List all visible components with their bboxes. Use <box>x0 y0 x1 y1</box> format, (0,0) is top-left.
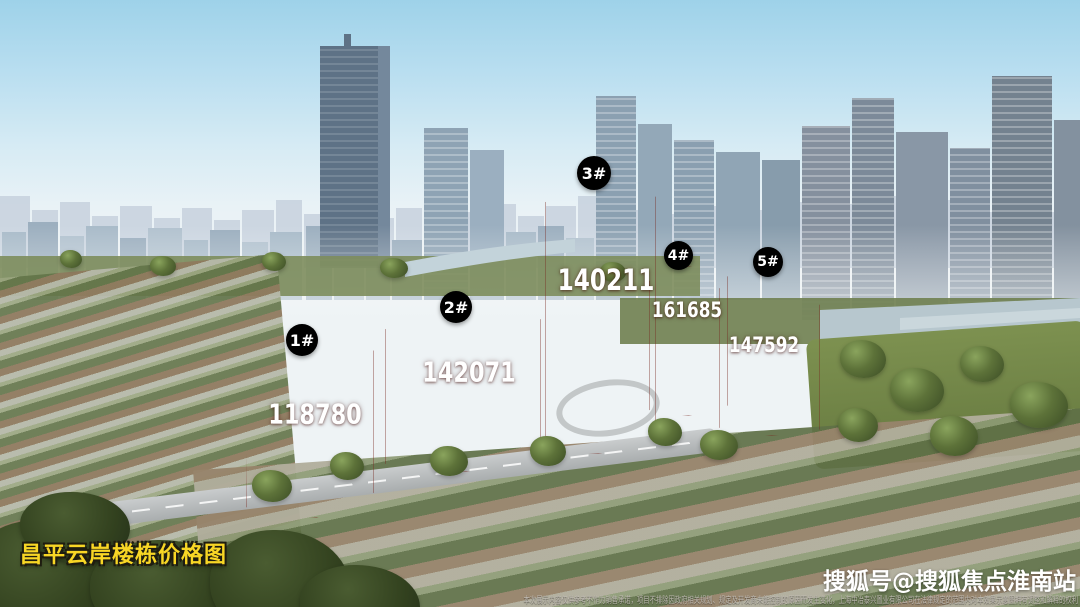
building-2-badge: 2# <box>440 291 472 323</box>
tree <box>890 368 944 412</box>
building-2-label: 2# <box>444 298 469 317</box>
disclaimer-text: 本次展示内容仅供参考不作为销售承诺，项目不排除因政府相关规划、规定及开发商未能控… <box>524 593 1078 606</box>
tree <box>840 340 886 378</box>
tree <box>700 430 738 460</box>
building-5-price: 147592 <box>729 333 799 357</box>
building-5-label: 5# <box>757 254 778 270</box>
building-5-badge: 5# <box>753 247 783 277</box>
tree <box>648 418 682 446</box>
building-4 <box>649 266 728 416</box>
building-3-badge: 3# <box>577 156 611 190</box>
tree <box>530 436 566 466</box>
building-4-badge: 4# <box>664 241 693 270</box>
tree <box>838 408 878 442</box>
building-3-price: 140211 <box>558 263 655 297</box>
tree <box>150 256 176 276</box>
tree <box>252 470 292 502</box>
tree <box>330 452 364 480</box>
building-3 <box>545 186 656 454</box>
tree <box>380 258 408 278</box>
building-1-price: 118780 <box>268 398 362 431</box>
building-1-label: 1# <box>290 331 315 350</box>
tree <box>262 252 286 271</box>
building-4-price: 161685 <box>652 298 722 322</box>
tree <box>430 446 468 476</box>
building-3-label: 3# <box>582 164 607 183</box>
tree <box>60 250 82 268</box>
tree <box>960 346 1004 382</box>
watermark: 搜狐号@搜狐焦点淮南站 <box>823 562 1076 596</box>
tree <box>930 416 978 456</box>
page-title: 昌平云岸楼栋价格图 <box>20 537 227 569</box>
building-2-price: 142071 <box>422 356 516 389</box>
building-2 <box>385 306 541 472</box>
building-1-badge: 1# <box>286 324 318 356</box>
building-4-label: 4# <box>668 248 689 264</box>
tree <box>1010 382 1068 428</box>
price-map-scene: 1# 2# 3# 4# 5# 118780 142071 140211 1616… <box>0 0 1080 607</box>
